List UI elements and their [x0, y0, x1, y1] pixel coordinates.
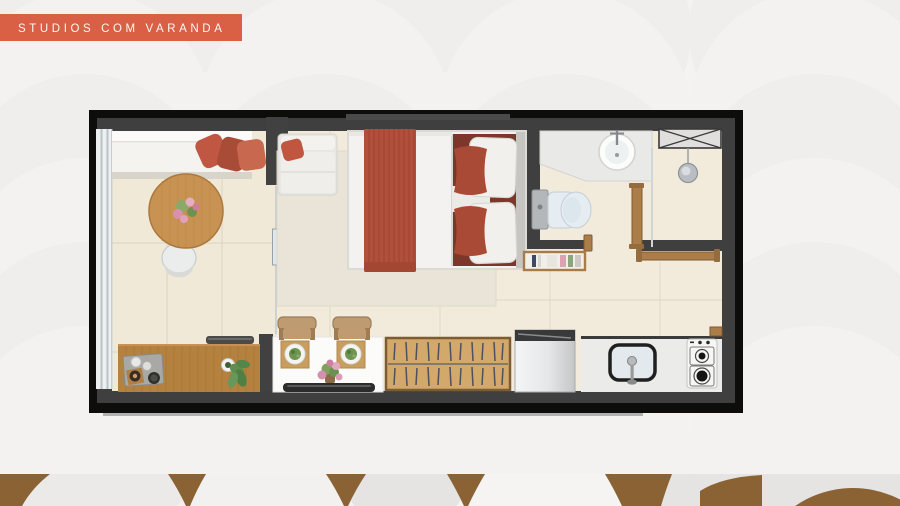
svg-text:STUDIOS COM VARANDA: STUDIOS COM VARANDA	[18, 23, 225, 35]
